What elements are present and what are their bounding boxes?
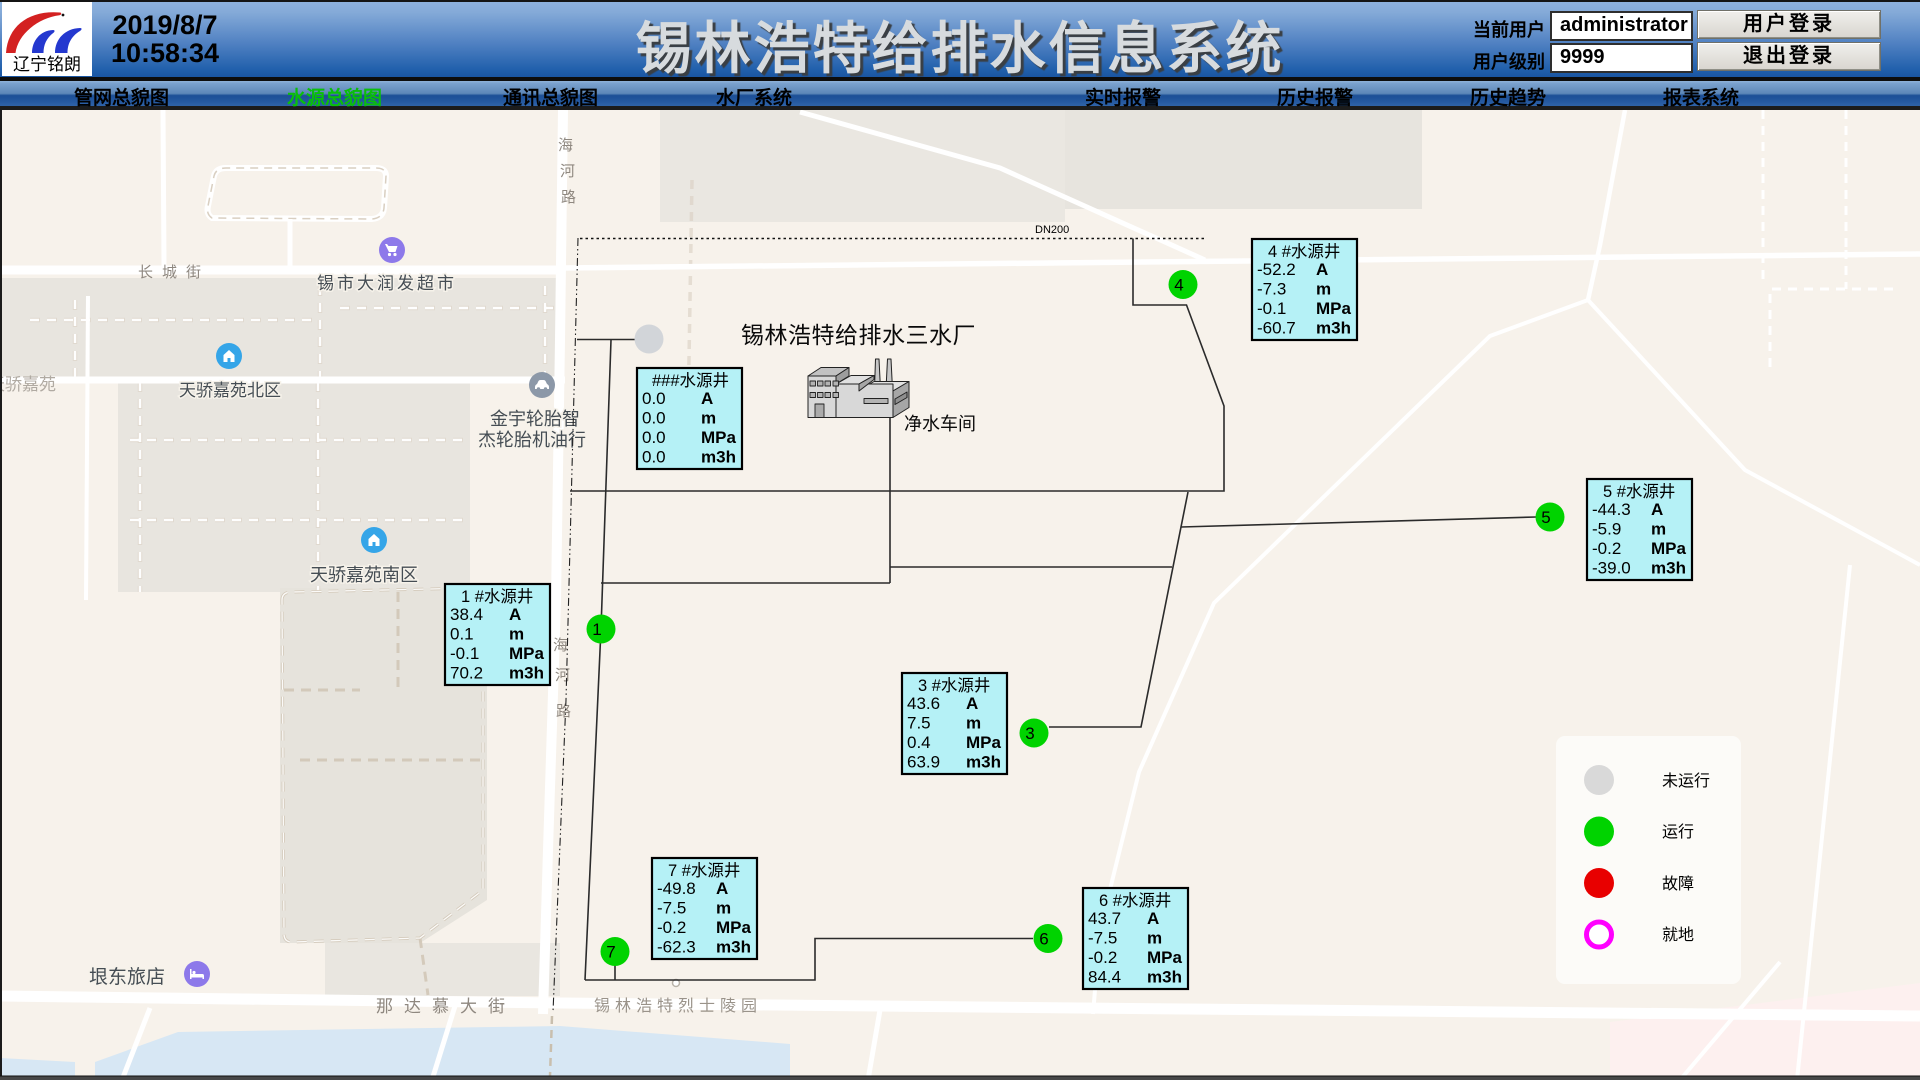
- svg-text:7.5: 7.5: [907, 714, 931, 733]
- svg-text:-0.1: -0.1: [1257, 299, 1286, 318]
- svg-text:6: 6: [1039, 930, 1048, 949]
- svg-text:锡市大润发超市: 锡市大润发超市: [317, 274, 457, 293]
- svg-text:那达慕大街: 那达慕大街: [376, 997, 516, 1016]
- svg-text:A: A: [1651, 500, 1663, 519]
- svg-text:河: 河: [555, 667, 570, 684]
- svg-text:7: 7: [606, 943, 615, 962]
- svg-text:43.6: 43.6: [907, 694, 940, 713]
- svg-text:m: m: [1316, 280, 1331, 299]
- svg-text:m: m: [701, 409, 716, 428]
- svg-text:-0.2: -0.2: [1088, 948, 1117, 967]
- svg-text:-62.3: -62.3: [657, 938, 696, 957]
- svg-text:###水源井: ###水源井: [652, 371, 729, 390]
- svg-text:5: 5: [1541, 508, 1550, 527]
- svg-text:金宇轮胎智: 金宇轮胎智: [490, 409, 580, 429]
- svg-text:DN200: DN200: [1035, 224, 1069, 236]
- svg-text:-60.7: -60.7: [1257, 319, 1296, 338]
- svg-text:-52.2: -52.2: [1257, 260, 1296, 279]
- svg-text:锡林浩特给排水三水厂: 锡林浩特给排水三水厂: [741, 323, 976, 348]
- svg-text:1: 1: [592, 620, 601, 639]
- svg-text:m3h: m3h: [716, 938, 751, 957]
- svg-text:A: A: [716, 879, 728, 898]
- svg-text:海: 海: [558, 137, 573, 154]
- svg-text:-0.2: -0.2: [1592, 539, 1621, 558]
- svg-text:63.9: 63.9: [907, 753, 940, 772]
- svg-text:m3h: m3h: [509, 664, 544, 683]
- svg-text:天骄嘉苑南区: 天骄嘉苑南区: [310, 565, 418, 585]
- svg-text:m: m: [1651, 520, 1666, 539]
- svg-text:净水车间: 净水车间: [904, 414, 976, 434]
- svg-text:70.2: 70.2: [450, 664, 483, 683]
- svg-text:-7.5: -7.5: [1088, 929, 1117, 948]
- svg-text:m3h: m3h: [701, 448, 736, 467]
- svg-text:MPa: MPa: [1651, 539, 1687, 558]
- svg-text:海: 海: [553, 637, 568, 654]
- svg-text:6 #水源井: 6 #水源井: [1099, 891, 1171, 910]
- svg-text:MPa: MPa: [1316, 299, 1352, 318]
- svg-text:杰轮胎机油行: 杰轮胎机油行: [478, 430, 586, 450]
- svg-text:MPa: MPa: [716, 918, 752, 937]
- svg-text:3 #水源井: 3 #水源井: [918, 676, 990, 695]
- svg-text:MPa: MPa: [701, 428, 737, 447]
- svg-text:A: A: [1147, 909, 1159, 928]
- svg-text:河: 河: [560, 163, 575, 180]
- svg-text:84.4: 84.4: [1088, 968, 1121, 987]
- svg-text:A: A: [1316, 260, 1328, 279]
- svg-text:7 #水源井: 7 #水源井: [668, 861, 740, 880]
- svg-text:未运行: 未运行: [1662, 772, 1710, 790]
- svg-text:0.0: 0.0: [642, 428, 666, 447]
- svg-text:5 #水源井: 5 #水源井: [1603, 482, 1675, 501]
- svg-text:运行: 运行: [1662, 823, 1694, 841]
- svg-text:m: m: [716, 899, 731, 918]
- svg-text:0.1: 0.1: [450, 625, 474, 644]
- svg-text:MPa: MPa: [1147, 948, 1183, 967]
- svg-text:43.7: 43.7: [1088, 909, 1121, 928]
- svg-text:路: 路: [561, 189, 576, 206]
- svg-text:A: A: [966, 694, 978, 713]
- svg-text:长城街: 长城街: [138, 264, 210, 281]
- svg-text:路: 路: [556, 703, 571, 720]
- svg-text:天骄嘉苑北区: 天骄嘉苑北区: [179, 381, 281, 400]
- svg-text:m3h: m3h: [1316, 319, 1351, 338]
- svg-text:A: A: [509, 605, 521, 624]
- svg-text:-49.8: -49.8: [657, 879, 696, 898]
- svg-text:m: m: [966, 714, 981, 733]
- svg-text:m3h: m3h: [1651, 559, 1686, 578]
- svg-text:1 #水源井: 1 #水源井: [461, 587, 533, 606]
- svg-text:天骄嘉苑: 天骄嘉苑: [0, 375, 56, 394]
- svg-text:锡林浩特烈士陵园: 锡林浩特烈士陵园: [594, 997, 762, 1015]
- svg-text:38.4: 38.4: [450, 605, 483, 624]
- svg-text:0.4: 0.4: [907, 733, 931, 752]
- svg-text:0.0: 0.0: [642, 409, 666, 428]
- svg-text:A: A: [701, 389, 713, 408]
- svg-text:MPa: MPa: [509, 644, 545, 663]
- svg-text:MPa: MPa: [966, 733, 1002, 752]
- svg-text:就地: 就地: [1662, 926, 1694, 944]
- svg-text:-5.9: -5.9: [1592, 520, 1621, 539]
- svg-text:0.0: 0.0: [642, 389, 666, 408]
- svg-text:故障: 故障: [1662, 875, 1694, 893]
- svg-text:m: m: [509, 625, 524, 644]
- svg-text:4: 4: [1174, 276, 1183, 295]
- svg-text:-39.0: -39.0: [1592, 559, 1631, 578]
- svg-text:-7.5: -7.5: [657, 899, 686, 918]
- svg-text:m3h: m3h: [966, 753, 1001, 772]
- svg-text:-44.3: -44.3: [1592, 500, 1631, 519]
- svg-text:垠东旅店: 垠东旅店: [89, 966, 165, 988]
- svg-text:m: m: [1147, 929, 1162, 948]
- svg-text:m3h: m3h: [1147, 968, 1182, 987]
- svg-text:-7.3: -7.3: [1257, 280, 1286, 299]
- svg-text:-0.1: -0.1: [450, 644, 479, 663]
- svg-text:-0.2: -0.2: [657, 918, 686, 937]
- svg-text:4 #水源井: 4 #水源井: [1268, 242, 1340, 261]
- svg-text:3: 3: [1025, 724, 1034, 743]
- svg-text:0.0: 0.0: [642, 448, 666, 467]
